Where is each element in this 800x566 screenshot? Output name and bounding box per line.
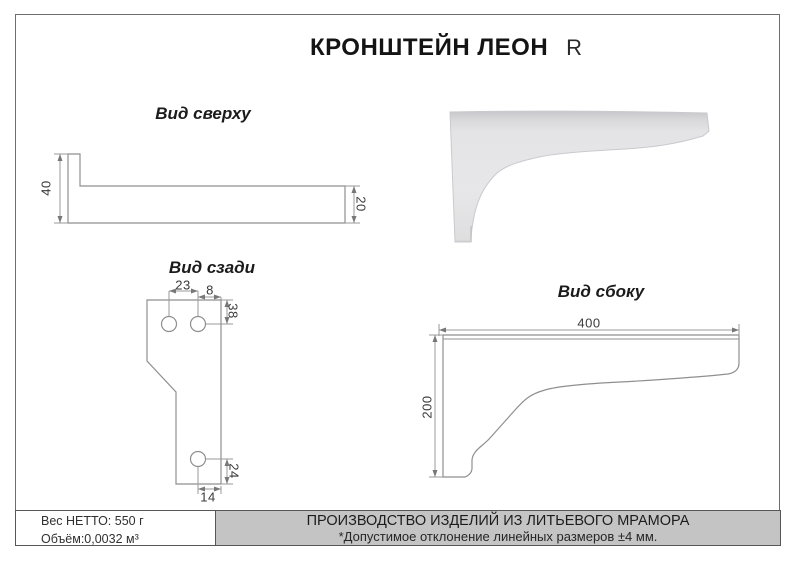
bracket-3d-render: [440, 100, 730, 250]
tolerance-note-text: *Допустимое отклонение линейных размеров…: [339, 529, 658, 544]
page-title: КРОНШТЕЙН ЛЕОНR: [310, 34, 582, 62]
top-view-dim-20: 20: [354, 196, 369, 211]
back-view-dim-23: 23: [175, 278, 190, 293]
back-view-dim-24: 24: [227, 463, 242, 478]
back-view-dim-8: 8: [206, 283, 214, 298]
top-view-label: Вид сверху: [155, 104, 251, 124]
top-view-dim-40: 40: [39, 180, 54, 195]
side-view-dim-200: 200: [420, 395, 435, 418]
volume-text: Объём:0,0032 м³: [41, 532, 139, 546]
footer-production-cell: ПРОИЗВОДСТВО ИЗДЕЛИЙ ИЗ ЛИТЬЕВОГО МРАМОР…: [215, 510, 781, 546]
page-title-variant: R: [566, 35, 582, 60]
page-title-main: КРОНШТЕЙН ЛЕОН: [310, 34, 548, 61]
back-view-label: Вид сзади: [169, 258, 255, 278]
footer-specs-cell: Вес НЕТТО: 550 г Объём:0,0032 м³: [15, 510, 216, 546]
back-view-dim-38: 38: [226, 303, 241, 318]
top-view-drawing: [30, 140, 375, 240]
side-view-dim-400: 400: [577, 316, 600, 331]
back-view-dim-14: 14: [200, 490, 215, 505]
net-weight-text: Вес НЕТТО: 550 г: [41, 514, 144, 528]
production-title-text: ПРОИЗВОДСТВО ИЗДЕЛИЙ ИЗ ЛИТЬЕВОГО МРАМОР…: [307, 513, 690, 529]
